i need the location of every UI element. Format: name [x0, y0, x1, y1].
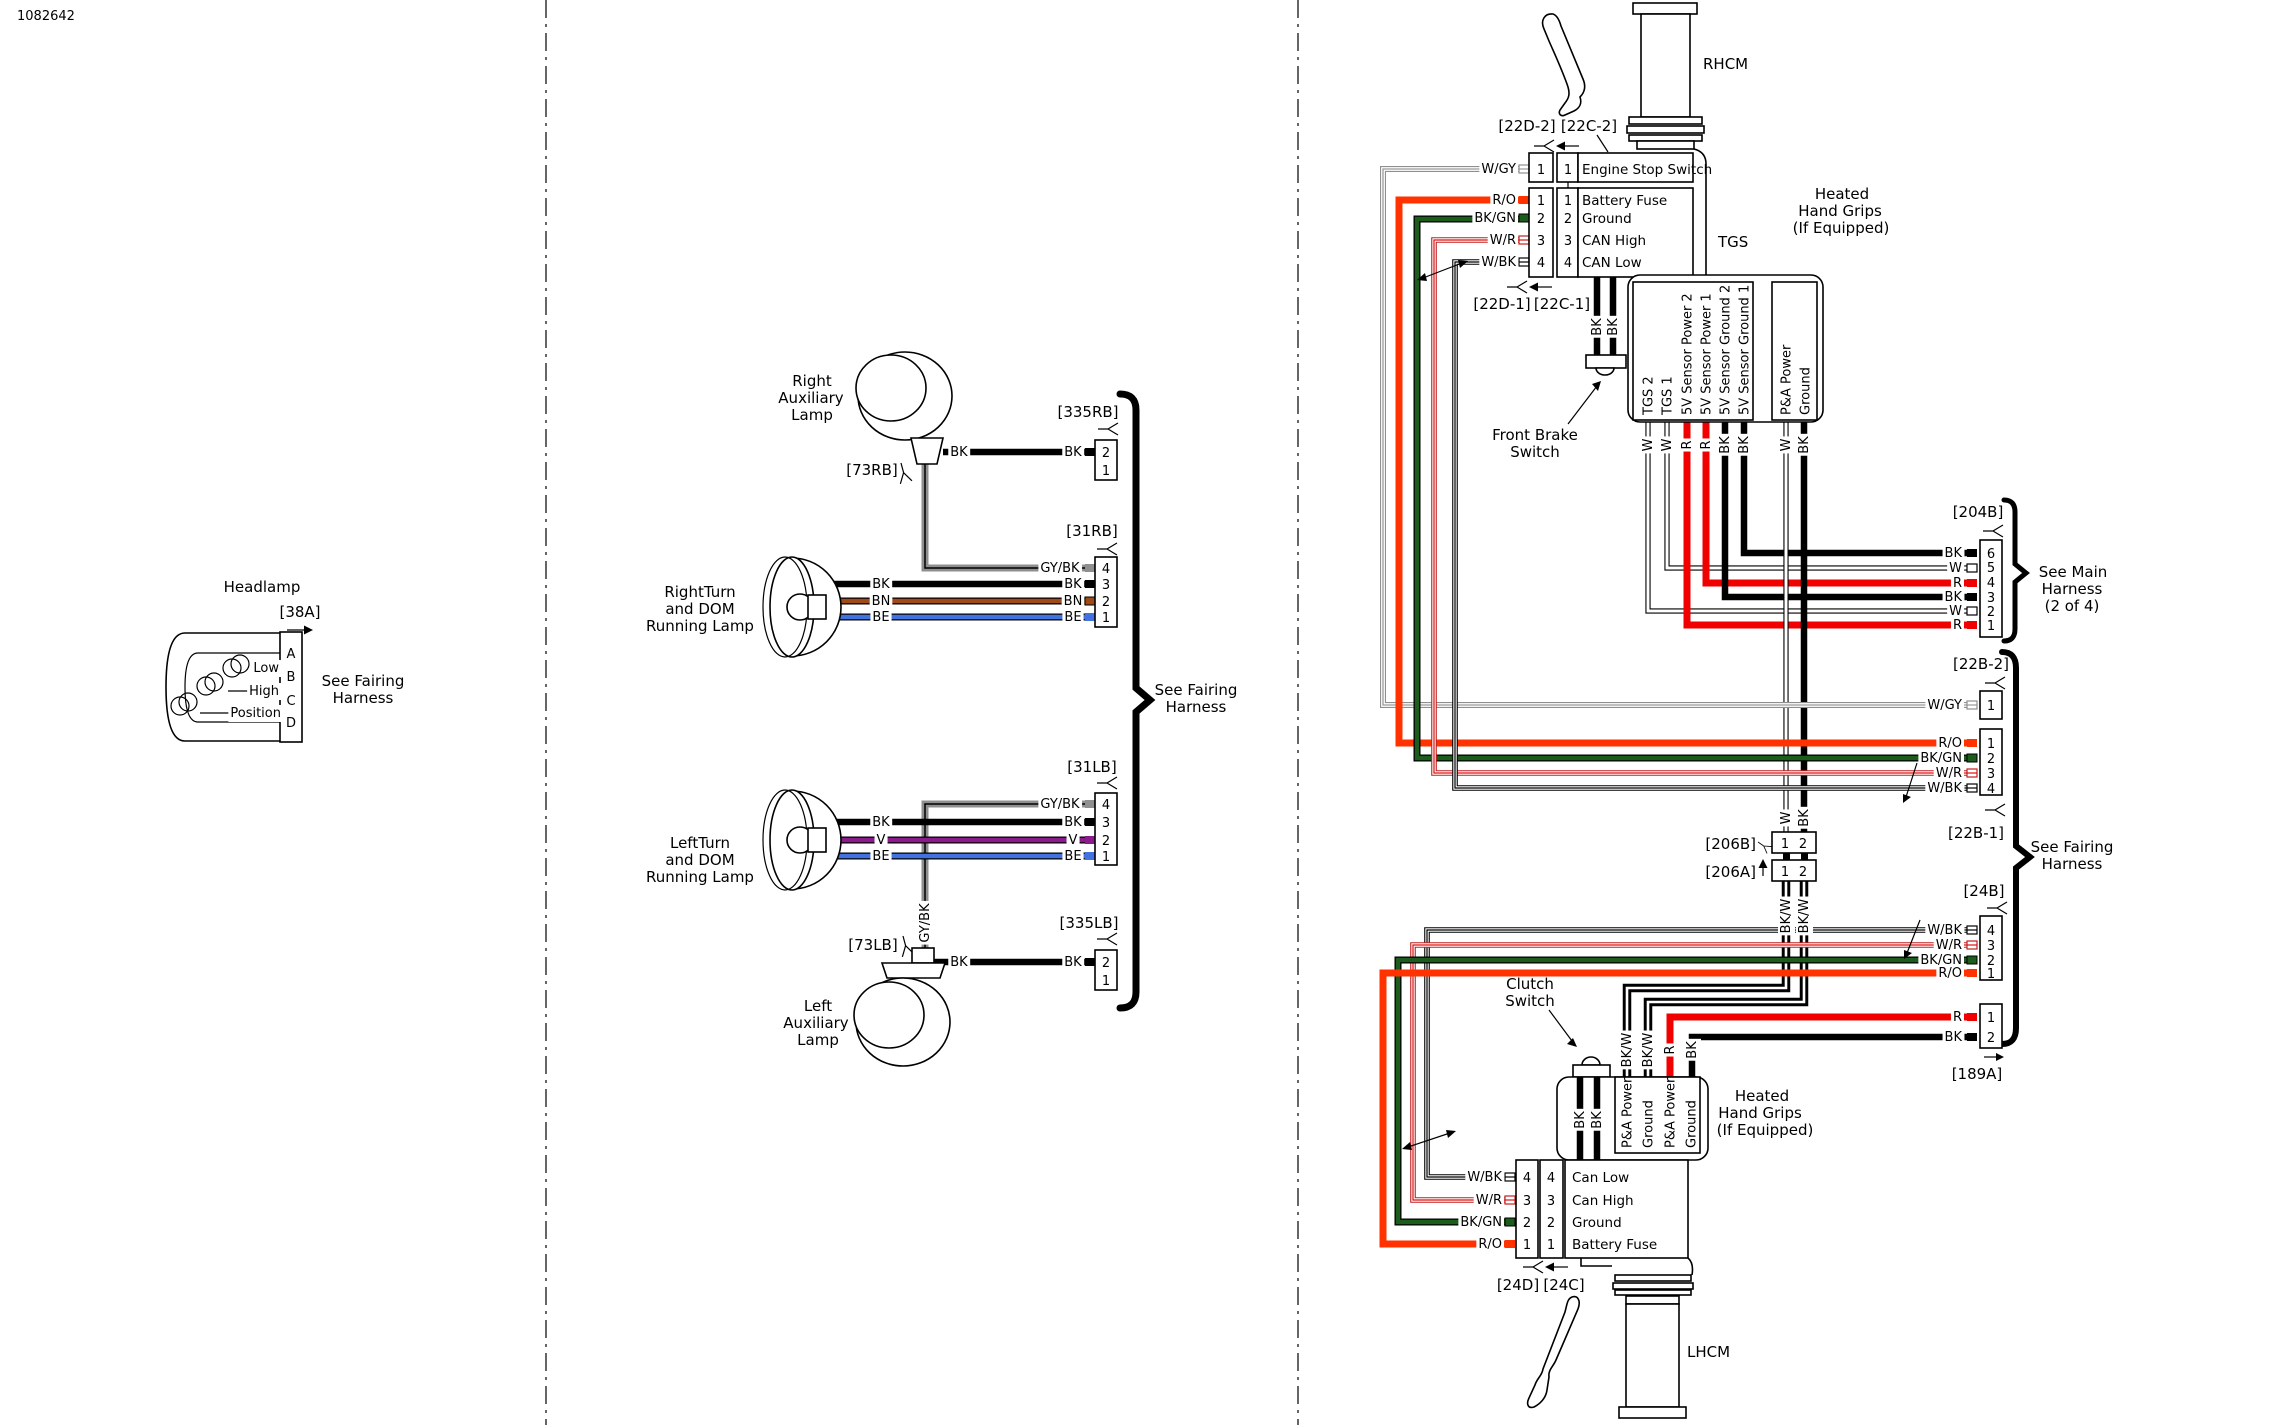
pin-number: 1: [1102, 850, 1110, 865]
wire-label: BK: [1797, 809, 1812, 827]
wire-label: BK: [1573, 1111, 1588, 1129]
wire-label: BK/W: [1779, 899, 1794, 934]
function-label: Engine Stop Switch: [1582, 162, 1712, 178]
connector-335rb-label: [335RB]: [1057, 403, 1118, 421]
wire-bk: [1692, 1037, 1967, 1077]
wire-label: W/R: [1490, 233, 1516, 248]
function-label: CAN Low: [1582, 255, 1642, 271]
pin-number: 4: [1564, 256, 1572, 271]
wire-label: BK: [1945, 1030, 1963, 1045]
wire-label: BK/W: [1641, 1033, 1656, 1068]
pin-number: 2: [1523, 1216, 1531, 1231]
wire-bk: [816, 822, 1085, 832]
connector-206b-label: [206B]: [1705, 835, 1756, 853]
wire-label: W/BK: [1927, 923, 1962, 938]
wire-label: BK: [1797, 436, 1812, 454]
wire-label: R: [1953, 576, 1962, 591]
pa-column-label: Ground: [1799, 367, 1814, 415]
pin-number: 1: [1987, 1011, 1995, 1026]
clutch-switch-label: Switch: [1505, 992, 1555, 1010]
pin-number: 5: [1987, 561, 1995, 576]
left-turn-title: Running Lamp: [646, 868, 754, 886]
pin-number: 3: [1564, 234, 1572, 249]
wire-label: BK: [872, 577, 890, 592]
clutch-lever-icon: [1528, 1297, 1580, 1408]
front-brake-switch-icon: [1586, 355, 1626, 375]
lhcm-grip-icon: [1613, 1275, 1693, 1418]
grip-column-label: Ground: [1642, 1100, 1657, 1148]
left-aux-title: Lamp: [797, 1031, 839, 1049]
wire-label: R: [1953, 618, 1962, 633]
wiring-diagram-page: 1082642 A B C D Low High Position Headla…: [0, 0, 2292, 1425]
wire-label: R/O: [1938, 966, 1962, 981]
wire-label: W: [1641, 438, 1656, 451]
tgs-label: TGS: [1717, 233, 1748, 251]
pin-number: 2: [1547, 1216, 1555, 1231]
wire-label: BK: [1945, 590, 1963, 605]
wire-bk: [816, 584, 1085, 598]
heated-grips-label: (If Equipped): [1717, 1121, 1814, 1139]
headlamp-group: A B C D Low High Position Headlamp [38A]…: [166, 578, 404, 742]
document-number: 1082642: [17, 9, 75, 24]
pin-number: 4: [1547, 1171, 1555, 1186]
connector-73lb-label: [73LB]: [848, 936, 897, 954]
heated-grips-label: Heated: [1815, 185, 1869, 203]
right-turn-title: RightTurn: [664, 583, 735, 601]
connector-31rb-label: [31RB]: [1066, 522, 1118, 540]
connector-24d-label: [24D]: [1497, 1276, 1539, 1294]
wire-bk: [1744, 420, 1967, 553]
pin-number: 2: [1799, 865, 1807, 880]
pin-number: 6: [1987, 547, 1995, 562]
connector-22c2-label: [22C-2]: [1561, 117, 1617, 135]
wire-label: BK/W: [1620, 1033, 1635, 1068]
right-turn-lamp-icon: [763, 557, 841, 657]
tgs-column-label: 5V Sensor Power 1: [1700, 293, 1715, 415]
wire-label: R/O: [1938, 736, 1962, 751]
wire-label: BN: [872, 594, 891, 609]
connector-204b-label: [204B]: [1953, 503, 2004, 521]
heated-grips-label: Heated: [1735, 1087, 1789, 1105]
right-arrow-icon: [1996, 1053, 2004, 1061]
tgs-column-label: TGS 1: [1661, 376, 1676, 416]
grip-column-label: P&A Power: [1621, 1077, 1636, 1148]
grip-column-label: Ground: [1685, 1100, 1700, 1148]
wire-label: GY/BK: [1040, 797, 1080, 812]
wiring-diagram: 1082642 A B C D Low High Position Headla…: [0, 0, 2292, 1425]
clutch-switch-label: Clutch: [1506, 975, 1554, 993]
pin-number: 3: [1987, 939, 1995, 954]
wire-label: R: [1699, 440, 1714, 449]
wire-label: R/O: [1492, 193, 1516, 208]
headlamp-title: Headlamp: [224, 578, 301, 596]
pin-number: 1: [1537, 163, 1545, 178]
tgs-column-label: 5V Sensor Ground 1: [1738, 285, 1753, 415]
connector-22d1-label: [22D-1]: [1473, 295, 1530, 313]
pin-number: 3: [1102, 816, 1110, 831]
connector-24c-label: [24C]: [1543, 1276, 1584, 1294]
wire-label: BK: [1737, 436, 1752, 454]
wire-label: V: [1069, 833, 1078, 848]
wire-label: GY/BK: [918, 903, 933, 943]
right-aux-title: Right: [792, 372, 832, 390]
pin-number: 2: [1537, 212, 1545, 227]
wire-label: BE: [872, 849, 889, 864]
headlamp-low-label: Low: [253, 661, 279, 676]
connector-24b-label: [24B]: [1963, 882, 2004, 900]
wire-label: BE: [872, 610, 889, 625]
wire-label: BK: [950, 955, 968, 970]
function-label: Battery Fuse: [1572, 1237, 1657, 1253]
wire-r: [1670, 1017, 1967, 1077]
wire-label: BK: [1590, 318, 1605, 336]
connector-73rb-label: [73RB]: [846, 461, 898, 479]
connector-22c1-label: [22C-1]: [1534, 295, 1590, 313]
left-turn-lamp-icon: [763, 790, 841, 890]
wire-label: BK: [1685, 1041, 1700, 1059]
headlamp-position-label: Position: [230, 706, 281, 721]
wire-label: W: [1779, 811, 1794, 824]
pin-number: C: [286, 694, 295, 709]
right-turn-title: Running Lamp: [646, 617, 754, 635]
fairing-harness-brace: [1120, 394, 1150, 1008]
right-arrow-icon: [304, 626, 313, 635]
heated-grips-label: Hand Grips: [1718, 1104, 1802, 1122]
see-fairing-note: See Fairing: [2031, 838, 2114, 856]
wire-label: V: [877, 833, 886, 848]
headlamp-high-label: High: [249, 684, 279, 699]
pin-number: 3: [1547, 1194, 1555, 1209]
wire-label: BE: [1064, 610, 1081, 625]
wire-label: BK: [1064, 815, 1082, 830]
pin-number: 2: [1102, 834, 1110, 849]
pin-number: 4: [1987, 576, 1995, 591]
wire-label: W/R: [1936, 766, 1962, 781]
wire-label: W: [1949, 604, 1962, 619]
pin-number: 4: [1102, 562, 1110, 577]
pin-number: 4: [1987, 924, 1995, 939]
wire-label: BK/GN: [1920, 751, 1962, 766]
left-aux-title: Auxiliary: [783, 1014, 849, 1032]
middle-section: See Fairing Harness Right Auxiliary Lamp…: [646, 352, 1237, 1066]
pin-number: 1: [1564, 194, 1572, 209]
pin-number: 1: [1987, 619, 1995, 634]
rhcm-grip-icon: [1627, 3, 1704, 149]
see-main-brace: [2004, 500, 2026, 641]
pin-number: 1: [1523, 1238, 1531, 1253]
wire-label: BK/W: [1797, 899, 1812, 934]
pin-number: 4: [1987, 782, 1995, 797]
tgs-column-label: 5V Sensor Ground 2: [1719, 285, 1734, 415]
see-fairing-note: See Fairing: [1155, 681, 1238, 699]
right-turn-title: and DOM: [665, 600, 734, 618]
connector-206a-box: [1772, 860, 1816, 881]
pin-number: 1: [1987, 967, 1995, 982]
see-fairing-note: Harness: [1166, 698, 1227, 716]
pin-number: A: [287, 647, 296, 662]
connector-206a-label: [206A]: [1705, 863, 1756, 881]
pin-number: 4: [1523, 1171, 1531, 1186]
wire-label: W/R: [1476, 1193, 1502, 1208]
pin-number: 4: [1537, 256, 1545, 271]
wire-label: BK: [1064, 955, 1082, 970]
wire-label: W/GY: [1927, 698, 1962, 713]
pin-number: 1: [1781, 865, 1789, 880]
wire-label: BK: [950, 445, 968, 460]
left-aux-lamp-icon: [854, 948, 950, 1066]
right-aux-title: Auxiliary: [778, 389, 844, 407]
pin-number: 1: [1102, 611, 1110, 626]
clutch-switch-icon: [1573, 1057, 1610, 1077]
pin-number: 2: [1987, 1031, 1995, 1046]
pin-number: 1: [1987, 737, 1995, 752]
pin-number: 1: [1781, 837, 1789, 852]
connector-38a-label: [38A]: [279, 603, 320, 621]
pin-number: B: [287, 670, 296, 685]
tgs-column-label: TGS 2: [1642, 376, 1657, 416]
right-section: RHCM [22D-2] [22C-2] 1 1 Engine Stop Swi…: [1383, 3, 2113, 1418]
wire-label: W/BK: [1481, 255, 1516, 270]
wire-label: R: [1680, 440, 1695, 449]
pin-number: 3: [1537, 234, 1545, 249]
lhcm-label: LHCM: [1687, 1343, 1730, 1361]
see-fairing-note: Harness: [2042, 855, 2103, 873]
pin-number: 2: [1102, 595, 1110, 610]
function-label: Can High: [1572, 1193, 1634, 1209]
function-label: Battery Fuse: [1582, 193, 1667, 209]
right-aux-lamp-icon: [856, 352, 952, 464]
wire-label: BK/GN: [1474, 211, 1516, 226]
wire-label: BK: [1718, 436, 1733, 454]
connector-335lb-label: [335LB]: [1060, 914, 1119, 932]
see-main-note: (2 of 4): [2045, 597, 2100, 615]
tgs-column-label: 5V Sensor Power 2: [1681, 293, 1696, 415]
grip-column-label: P&A Power: [1664, 1077, 1679, 1148]
pin-number: 2: [1987, 752, 1995, 767]
wire-label: W/BK: [1467, 1170, 1502, 1185]
wire-label: GY/BK: [1040, 561, 1080, 576]
pin-number: 1: [1102, 974, 1110, 989]
front-brake-label: Front Brake: [1492, 426, 1578, 444]
wire-label: BK: [872, 815, 890, 830]
pin-number: 2: [1799, 837, 1807, 852]
pin-number: 1: [1987, 699, 1995, 714]
wire-label: BK: [1064, 577, 1082, 592]
wire-label: BK: [1606, 318, 1621, 336]
right-aux-title: Lamp: [791, 406, 833, 424]
pin-number: 2: [1987, 605, 1995, 620]
pin-number: 1: [1547, 1238, 1555, 1253]
function-label: Ground: [1572, 1215, 1622, 1231]
wire-label: BK: [1590, 1111, 1605, 1129]
wire-label: R: [1953, 1010, 1962, 1025]
connector-22b2-label: [22B-2]: [1953, 655, 2009, 673]
pin-number: 1: [1102, 464, 1110, 479]
wire-label: W/GY: [1481, 162, 1516, 177]
wire-label: BK: [1064, 445, 1082, 460]
left-turn-title: LeftTurn: [670, 834, 730, 852]
wire-label: W/BK: [1927, 781, 1962, 796]
connector-22d2-label: [22D-2]: [1498, 117, 1555, 135]
wire-label: R/O: [1478, 1237, 1502, 1252]
pin-number: 1: [1537, 194, 1545, 209]
pin-number: 3: [1523, 1194, 1531, 1209]
wire-label: BE: [1064, 849, 1081, 864]
pin-number: D: [286, 716, 296, 731]
connector-189a-label: [189A]: [1952, 1065, 2003, 1083]
left-aux-title: Left: [804, 997, 832, 1015]
wire-label: BK: [1945, 546, 1963, 561]
pin-number: 2: [1102, 956, 1110, 971]
pointer-arrow-icon: [1567, 1038, 1577, 1047]
see-fairing-brace: [2002, 652, 2030, 1044]
wire-label: W: [1779, 438, 1794, 451]
pin-number: 4: [1102, 798, 1110, 813]
function-label: Ground: [1582, 211, 1632, 227]
pin-number: 3: [1987, 591, 1995, 606]
connector-22b1-label: [22B-1]: [1948, 824, 2004, 842]
front-brake-label: Switch: [1510, 443, 1560, 461]
pin-number: 3: [1987, 767, 1995, 782]
wire-label: BK/GN: [1460, 1215, 1502, 1230]
pin-number: 2: [1564, 212, 1572, 227]
pin-number: 2: [1102, 446, 1110, 461]
pointer-arrow-icon: [1592, 381, 1601, 391]
pin-number: 1: [1564, 163, 1572, 178]
see-fairing-note: Harness: [333, 689, 394, 707]
heated-grips-label: Hand Grips: [1798, 202, 1882, 220]
wire-label: BN: [1064, 594, 1083, 609]
pa-column-label: P&A Power: [1780, 344, 1795, 415]
see-main-note: Harness: [2042, 580, 2103, 598]
wire-label: W: [1660, 438, 1675, 451]
wire-label: R: [1663, 1045, 1678, 1054]
function-label: CAN High: [1582, 233, 1646, 249]
see-main-note: See Main: [2039, 563, 2108, 581]
connector-31lb-label: [31LB]: [1067, 758, 1116, 776]
connector-206b-box: [1772, 832, 1816, 853]
brake-lever-icon: [1543, 14, 1585, 116]
heated-grips-label: (If Equipped): [1793, 219, 1890, 237]
wire-label: W: [1949, 561, 1962, 576]
up-arrow-icon: [1759, 859, 1768, 868]
rhcm-label: RHCM: [1703, 55, 1748, 73]
wire-label: W/R: [1936, 938, 1962, 953]
pin-number: 3: [1102, 578, 1110, 593]
left-turn-title: and DOM: [665, 851, 734, 869]
function-label: Can Low: [1572, 1170, 1629, 1186]
see-fairing-note: See Fairing: [322, 672, 405, 690]
